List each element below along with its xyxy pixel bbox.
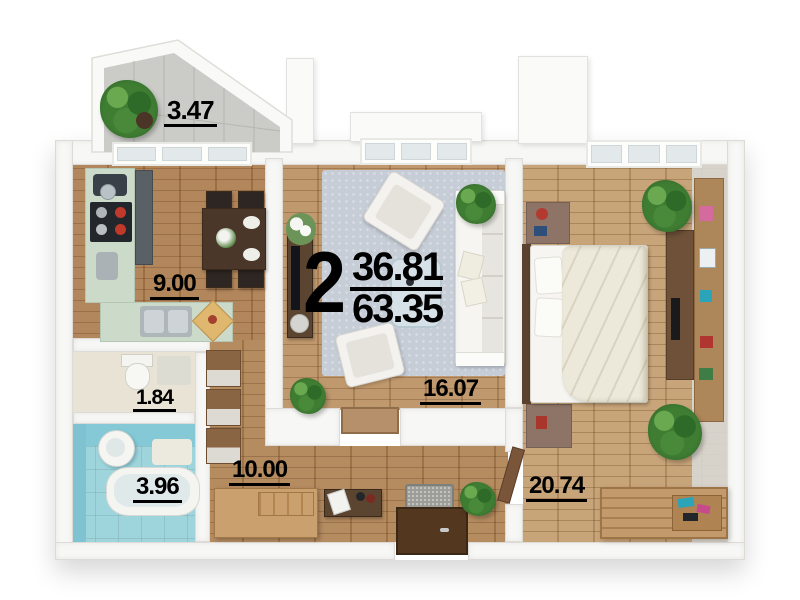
dining-plate — [243, 216, 260, 229]
kitchen-tall-cabinet — [135, 170, 153, 265]
armchair-cushion — [345, 332, 395, 378]
entrance-door-handle — [440, 528, 449, 532]
bed-pillow — [534, 297, 564, 337]
balcony-plant — [100, 80, 158, 138]
bench-item — [683, 513, 698, 521]
balcony-area-label: 3.47 — [164, 97, 217, 127]
kitchen-area-label: 9.00 — [150, 272, 199, 300]
kitchen-sink-bowl — [168, 310, 188, 333]
nightstand-item — [536, 416, 547, 429]
hall-closet — [206, 389, 241, 426]
floor-plan: 3.47 9.00 1.84 3.96 10.00 16.07 20.74 2 … — [0, 0, 800, 600]
apartment-total-area: 63.35 — [352, 290, 442, 328]
bedroom-window — [586, 140, 702, 168]
tv — [291, 246, 300, 310]
bathroom-area-label: 3.96 — [133, 475, 182, 503]
living-room-plant-top — [456, 184, 496, 224]
apartment-living-area: 36.81 — [352, 248, 442, 286]
living-room-bottom-wall-left — [265, 408, 340, 446]
apartment-rooms-count: 2 — [303, 240, 346, 326]
nightstand-lamp — [536, 208, 548, 220]
kitchen-sink-bowl — [144, 310, 164, 333]
bottom-wall-right — [468, 542, 745, 560]
living-room-window — [360, 138, 472, 165]
living-room-area-label: 16.07 — [420, 377, 481, 405]
bed-pillow — [534, 256, 565, 295]
sofa-armrest — [456, 352, 504, 366]
hall-bedroom-wall-bottom — [505, 504, 523, 542]
shelf-item — [700, 336, 713, 348]
kettle — [100, 184, 116, 200]
nightstand-top — [526, 202, 570, 244]
entrance-door — [396, 507, 468, 555]
shoe-bench-compartments — [258, 492, 314, 516]
bedroom-tv — [671, 298, 680, 340]
hall-bedroom-wall-top — [505, 408, 523, 452]
living-room-left-wall — [265, 158, 283, 440]
dining-chair — [238, 268, 264, 288]
nightstand-bottom — [526, 404, 572, 448]
toilet-area-label: 1.84 — [133, 387, 176, 412]
stove-burner — [115, 207, 126, 218]
shelf-item — [699, 248, 716, 268]
cutting-board-food — [208, 315, 217, 324]
console-bottles — [356, 492, 365, 501]
stove-burner — [115, 224, 126, 235]
stove-burner — [96, 207, 107, 218]
dining-plate — [243, 248, 260, 261]
shelf-item — [700, 290, 712, 302]
table-flowers — [216, 228, 236, 248]
living-bedroom-wall — [505, 158, 523, 408]
bed-duvet — [562, 246, 647, 402]
right-wall — [727, 140, 745, 560]
bathroom-sink-basin — [106, 438, 125, 457]
stove-burner — [96, 224, 107, 235]
console-bottles — [366, 494, 375, 503]
hall-closet — [206, 350, 241, 387]
toilet-bathroom-wall — [73, 412, 195, 424]
living-room-door — [341, 407, 399, 434]
nightstand-item — [534, 226, 547, 236]
bathroom-rug — [152, 439, 192, 465]
shelf-item — [699, 368, 713, 380]
bottom-wall-left — [55, 542, 395, 560]
bedroom-area-label: 20.74 — [526, 474, 587, 502]
left-wall — [55, 140, 73, 560]
dining-chair — [206, 268, 232, 288]
bathroom-wall-tile-left — [73, 424, 86, 542]
balcony-plant-pot — [136, 112, 153, 129]
kitchen-faucet — [96, 252, 118, 280]
upper-wall-block — [518, 56, 588, 144]
shelf-item — [700, 206, 713, 221]
bedroom-plant-top — [642, 180, 692, 232]
kitchen-balcony-window — [112, 142, 252, 166]
armchair-cushion — [374, 183, 433, 240]
hallway-area-label: 10.00 — [229, 458, 290, 486]
hallway-plant — [460, 482, 496, 516]
toilet-rug — [157, 356, 191, 385]
bedroom-plant-bottom — [648, 404, 702, 460]
living-room-plant-bottom — [290, 378, 326, 414]
